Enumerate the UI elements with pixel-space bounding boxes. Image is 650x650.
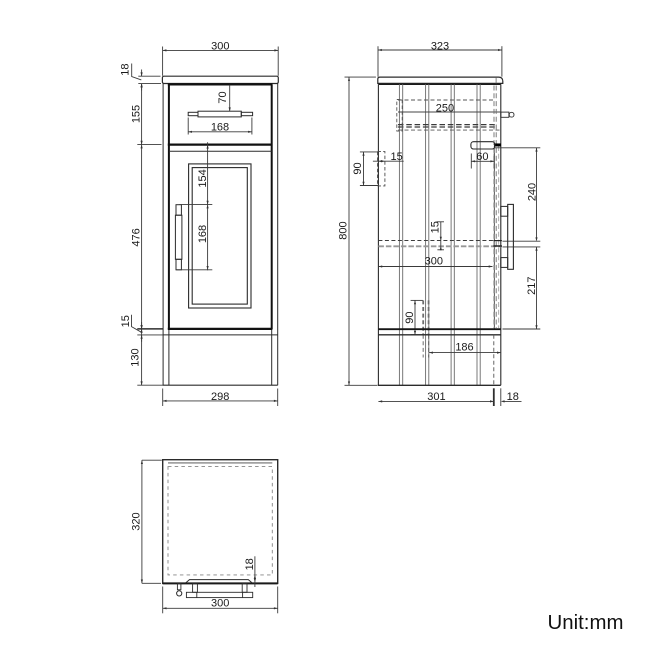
svg-text:298: 298 (211, 391, 229, 403)
svg-text:18: 18 (120, 63, 132, 75)
svg-text:168: 168 (211, 121, 229, 133)
svg-text:300: 300 (211, 597, 229, 609)
svg-text:130: 130 (130, 348, 142, 366)
svg-text:15: 15 (120, 315, 132, 327)
svg-text:154: 154 (197, 169, 209, 187)
svg-text:800: 800 (338, 221, 350, 239)
svg-text:476: 476 (130, 228, 142, 246)
svg-text:18: 18 (507, 391, 519, 403)
svg-text:320: 320 (131, 512, 143, 530)
svg-text:Unit:mm: Unit:mm (548, 612, 624, 634)
svg-text:90: 90 (404, 311, 416, 323)
svg-text:217: 217 (526, 277, 538, 295)
svg-text:15: 15 (390, 151, 402, 163)
svg-text:60: 60 (476, 151, 488, 163)
svg-text:300: 300 (211, 41, 229, 53)
svg-text:155: 155 (131, 105, 143, 123)
svg-text:250: 250 (436, 102, 454, 114)
svg-text:168: 168 (197, 225, 209, 243)
svg-text:240: 240 (526, 183, 538, 201)
svg-text:15: 15 (429, 221, 441, 233)
svg-text:301: 301 (427, 391, 445, 403)
svg-text:18: 18 (244, 558, 256, 570)
svg-text:323: 323 (431, 40, 449, 52)
svg-text:300: 300 (425, 256, 443, 268)
svg-text:70: 70 (217, 91, 229, 103)
svg-text:90: 90 (352, 162, 364, 174)
svg-text:186: 186 (455, 342, 473, 354)
